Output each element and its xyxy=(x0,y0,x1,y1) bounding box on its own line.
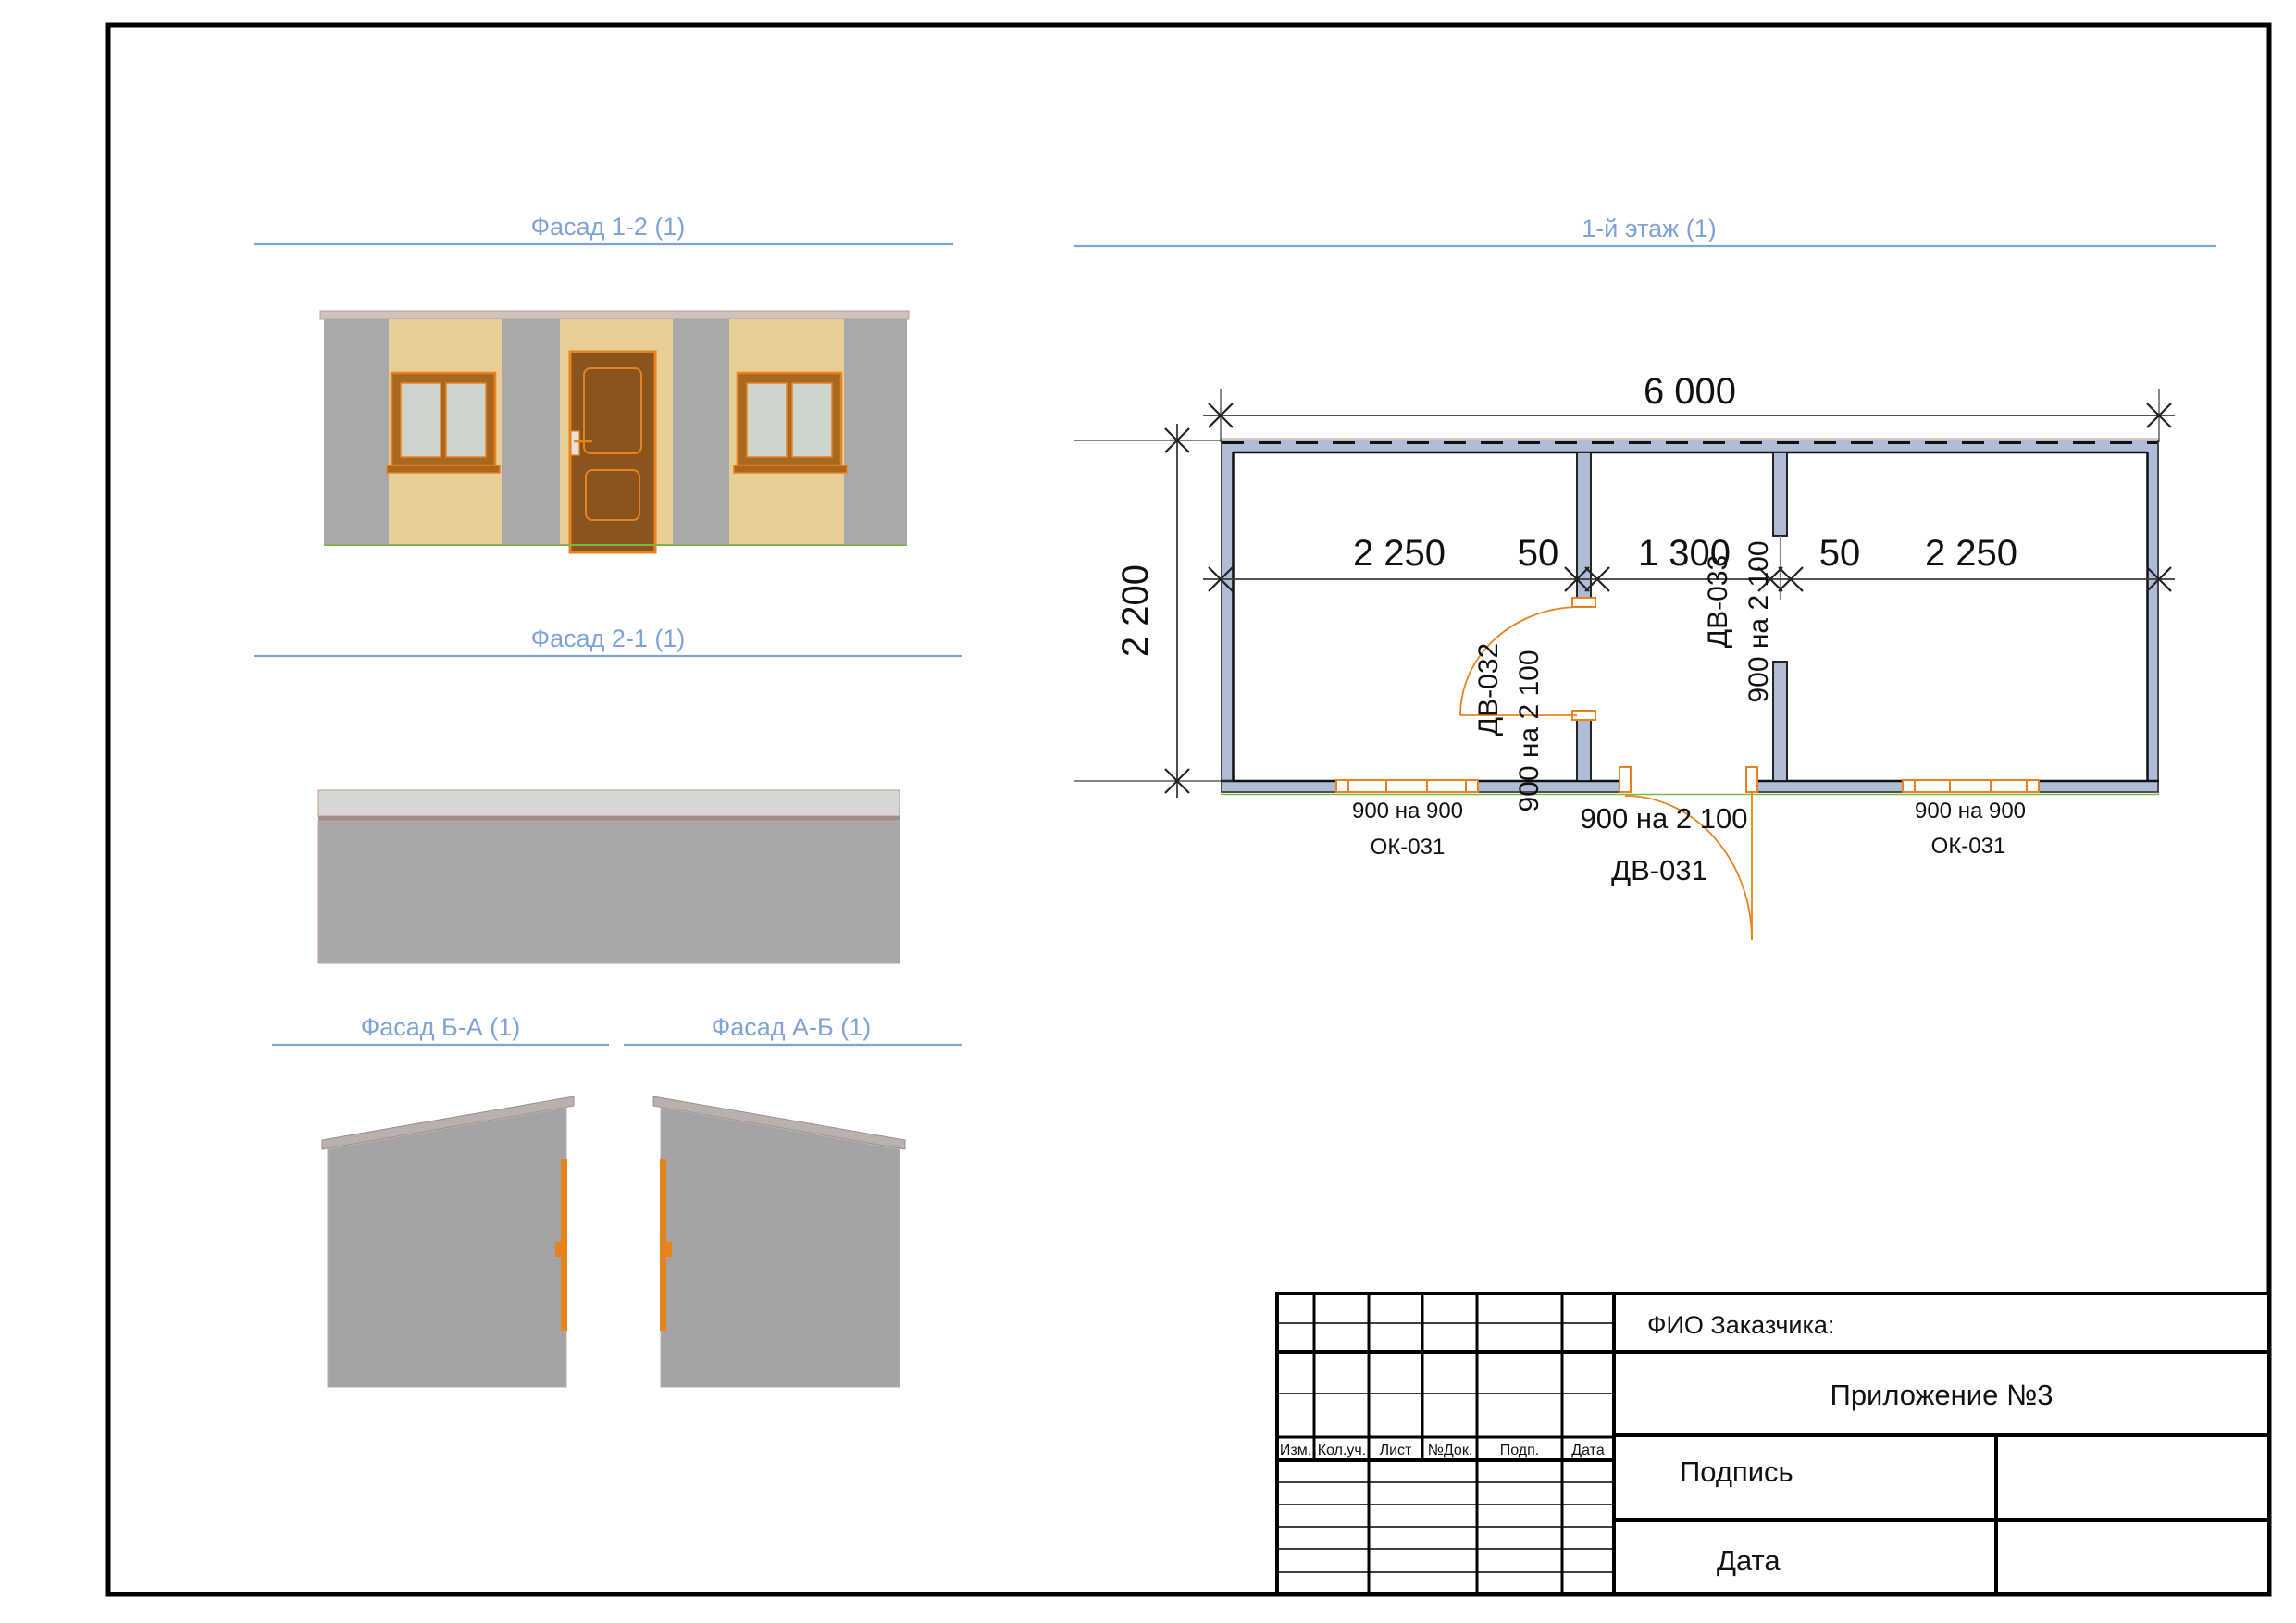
tb-col-izm: Изм. xyxy=(1280,1443,1311,1458)
label-dv032-size: 900 на 2 100 xyxy=(1514,650,1545,811)
facade-ba-door-handle xyxy=(555,1242,563,1257)
facade-2-1-edge-line xyxy=(318,816,900,821)
facade-wall-gray xyxy=(844,319,907,544)
plan-partition-left xyxy=(1572,452,1595,781)
dim-2250-right-label: 2 250 xyxy=(1925,533,2017,574)
label-window-right-code: ОК-031 xyxy=(1931,834,2006,859)
facade-window-right xyxy=(734,373,847,473)
tb-col-koluch: Кол.уч. xyxy=(1318,1443,1366,1458)
facade-ba-wall xyxy=(328,1108,566,1387)
facade-wall-gray xyxy=(673,319,729,544)
label-window-left-size: 900 на 900 xyxy=(1352,799,1463,824)
facade-ba-title: Фасад Б-А (1) xyxy=(361,1013,521,1041)
dim-50-left-label: 50 xyxy=(1518,533,1559,574)
facade-entrance-door xyxy=(570,352,655,552)
tb-col-list: Лист xyxy=(1380,1443,1412,1458)
facade-ab-door-handle xyxy=(664,1242,672,1257)
dim-segments: 2 250 50 1 300 50 2 250 xyxy=(1203,533,2175,591)
plan-window-left xyxy=(1336,780,1478,792)
plan-walls xyxy=(1221,439,2159,795)
dim-total-width: 6 000 xyxy=(1203,371,2175,442)
tb-col-podp: Подп. xyxy=(1500,1443,1540,1458)
tb-customer-label: ФИО Заказчика: xyxy=(1647,1311,1834,1339)
facade-wall-gray xyxy=(324,319,389,544)
facade-2-1-title: Фасад 2-1 (1) xyxy=(531,625,686,652)
facade-1-2-view: Фасад 1-2 (1) xyxy=(254,213,953,552)
facade-2-1-view: Фасад 2-1 (1) xyxy=(254,625,962,963)
facade-2-1-roof-band xyxy=(318,790,900,816)
dim-2200-label: 2 200 xyxy=(1115,564,1156,657)
dim-height: 2 200 xyxy=(1074,424,1233,798)
facade-ab-title: Фасад А-Б (1) xyxy=(712,1013,872,1041)
door-handle xyxy=(571,431,579,455)
drawing-sheet: Фасад 1-2 (1) xyxy=(0,0,2296,1623)
label-dv033-code: ДВ-033 xyxy=(1703,555,1733,648)
label-dv032-code: ДВ-032 xyxy=(1473,643,1504,736)
label-window-left-code: ОК-031 xyxy=(1371,835,1446,860)
facade-window-left xyxy=(387,373,500,473)
tb-appendix-label: Приложение №3 xyxy=(1831,1379,2054,1411)
dim-50-right-label: 50 xyxy=(1819,533,1861,574)
facade-wall-gray xyxy=(502,319,560,544)
tb-date-label: Дата xyxy=(1717,1544,1781,1577)
tb-col-ndok: №Док. xyxy=(1428,1443,1473,1458)
facade-ab-view: Фасад А-Б (1) xyxy=(624,1013,962,1387)
facade-2-1-wall xyxy=(318,821,900,963)
plan-partition-right xyxy=(1773,452,1787,781)
facade-1-2-title: Фасад 1-2 (1) xyxy=(531,213,686,241)
label-window-right-size: 900 на 900 xyxy=(1915,799,2026,824)
label-dv033-size: 900 на 2 100 xyxy=(1744,540,1774,702)
dim-2250-left-label: 2 250 xyxy=(1353,533,1446,574)
plan-window-right xyxy=(1903,780,2039,792)
dim-6000-label: 6 000 xyxy=(1644,371,1736,412)
label-dv031-size: 900 на 2 100 xyxy=(1581,802,1748,835)
facade-ab-wall xyxy=(661,1108,900,1387)
title-block: Изм. Кол.уч. Лист №Док. Подп. Дата ФИО З… xyxy=(1277,1294,2269,1594)
floor-plan-title: 1-й этаж (1) xyxy=(1582,215,1716,242)
label-dv031-code: ДВ-031 xyxy=(1611,854,1707,886)
tb-signature-label: Подпись xyxy=(1680,1456,1793,1488)
floor-plan-view: 1-й этаж (1) xyxy=(1074,215,2216,940)
facade-1-2-roof-strip xyxy=(320,311,909,319)
facade-ba-view: Фасад Б-А (1) xyxy=(272,1013,609,1387)
tb-col-data: Дата xyxy=(1571,1443,1605,1458)
